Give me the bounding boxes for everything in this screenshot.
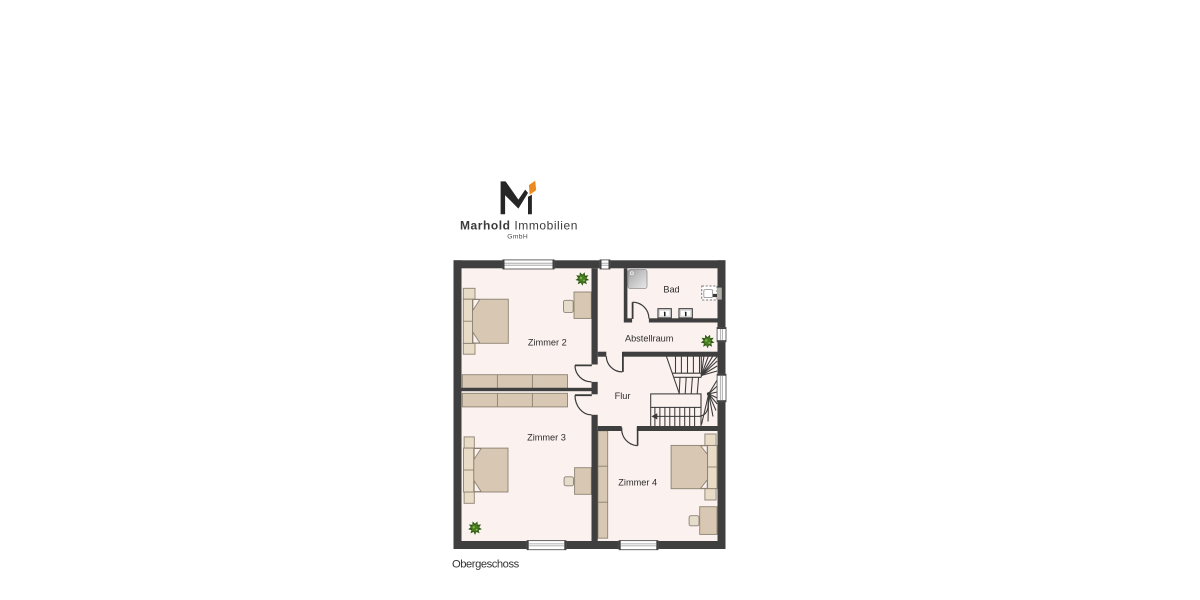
svg-text:Zimmer 3: Zimmer 3 [527,432,566,442]
svg-text:Obergeschoss: Obergeschoss [452,558,520,570]
svg-text:Marhold Immobilien: Marhold Immobilien [460,219,578,233]
svg-text:GmbH: GmbH [507,234,528,241]
svg-text:Abstellraum: Abstellraum [625,334,674,344]
svg-text:Zimmer 2: Zimmer 2 [528,338,567,348]
svg-text:Bad: Bad [663,284,679,294]
svg-text:Zimmer 4: Zimmer 4 [618,477,657,487]
svg-text:Flur: Flur [615,391,631,401]
